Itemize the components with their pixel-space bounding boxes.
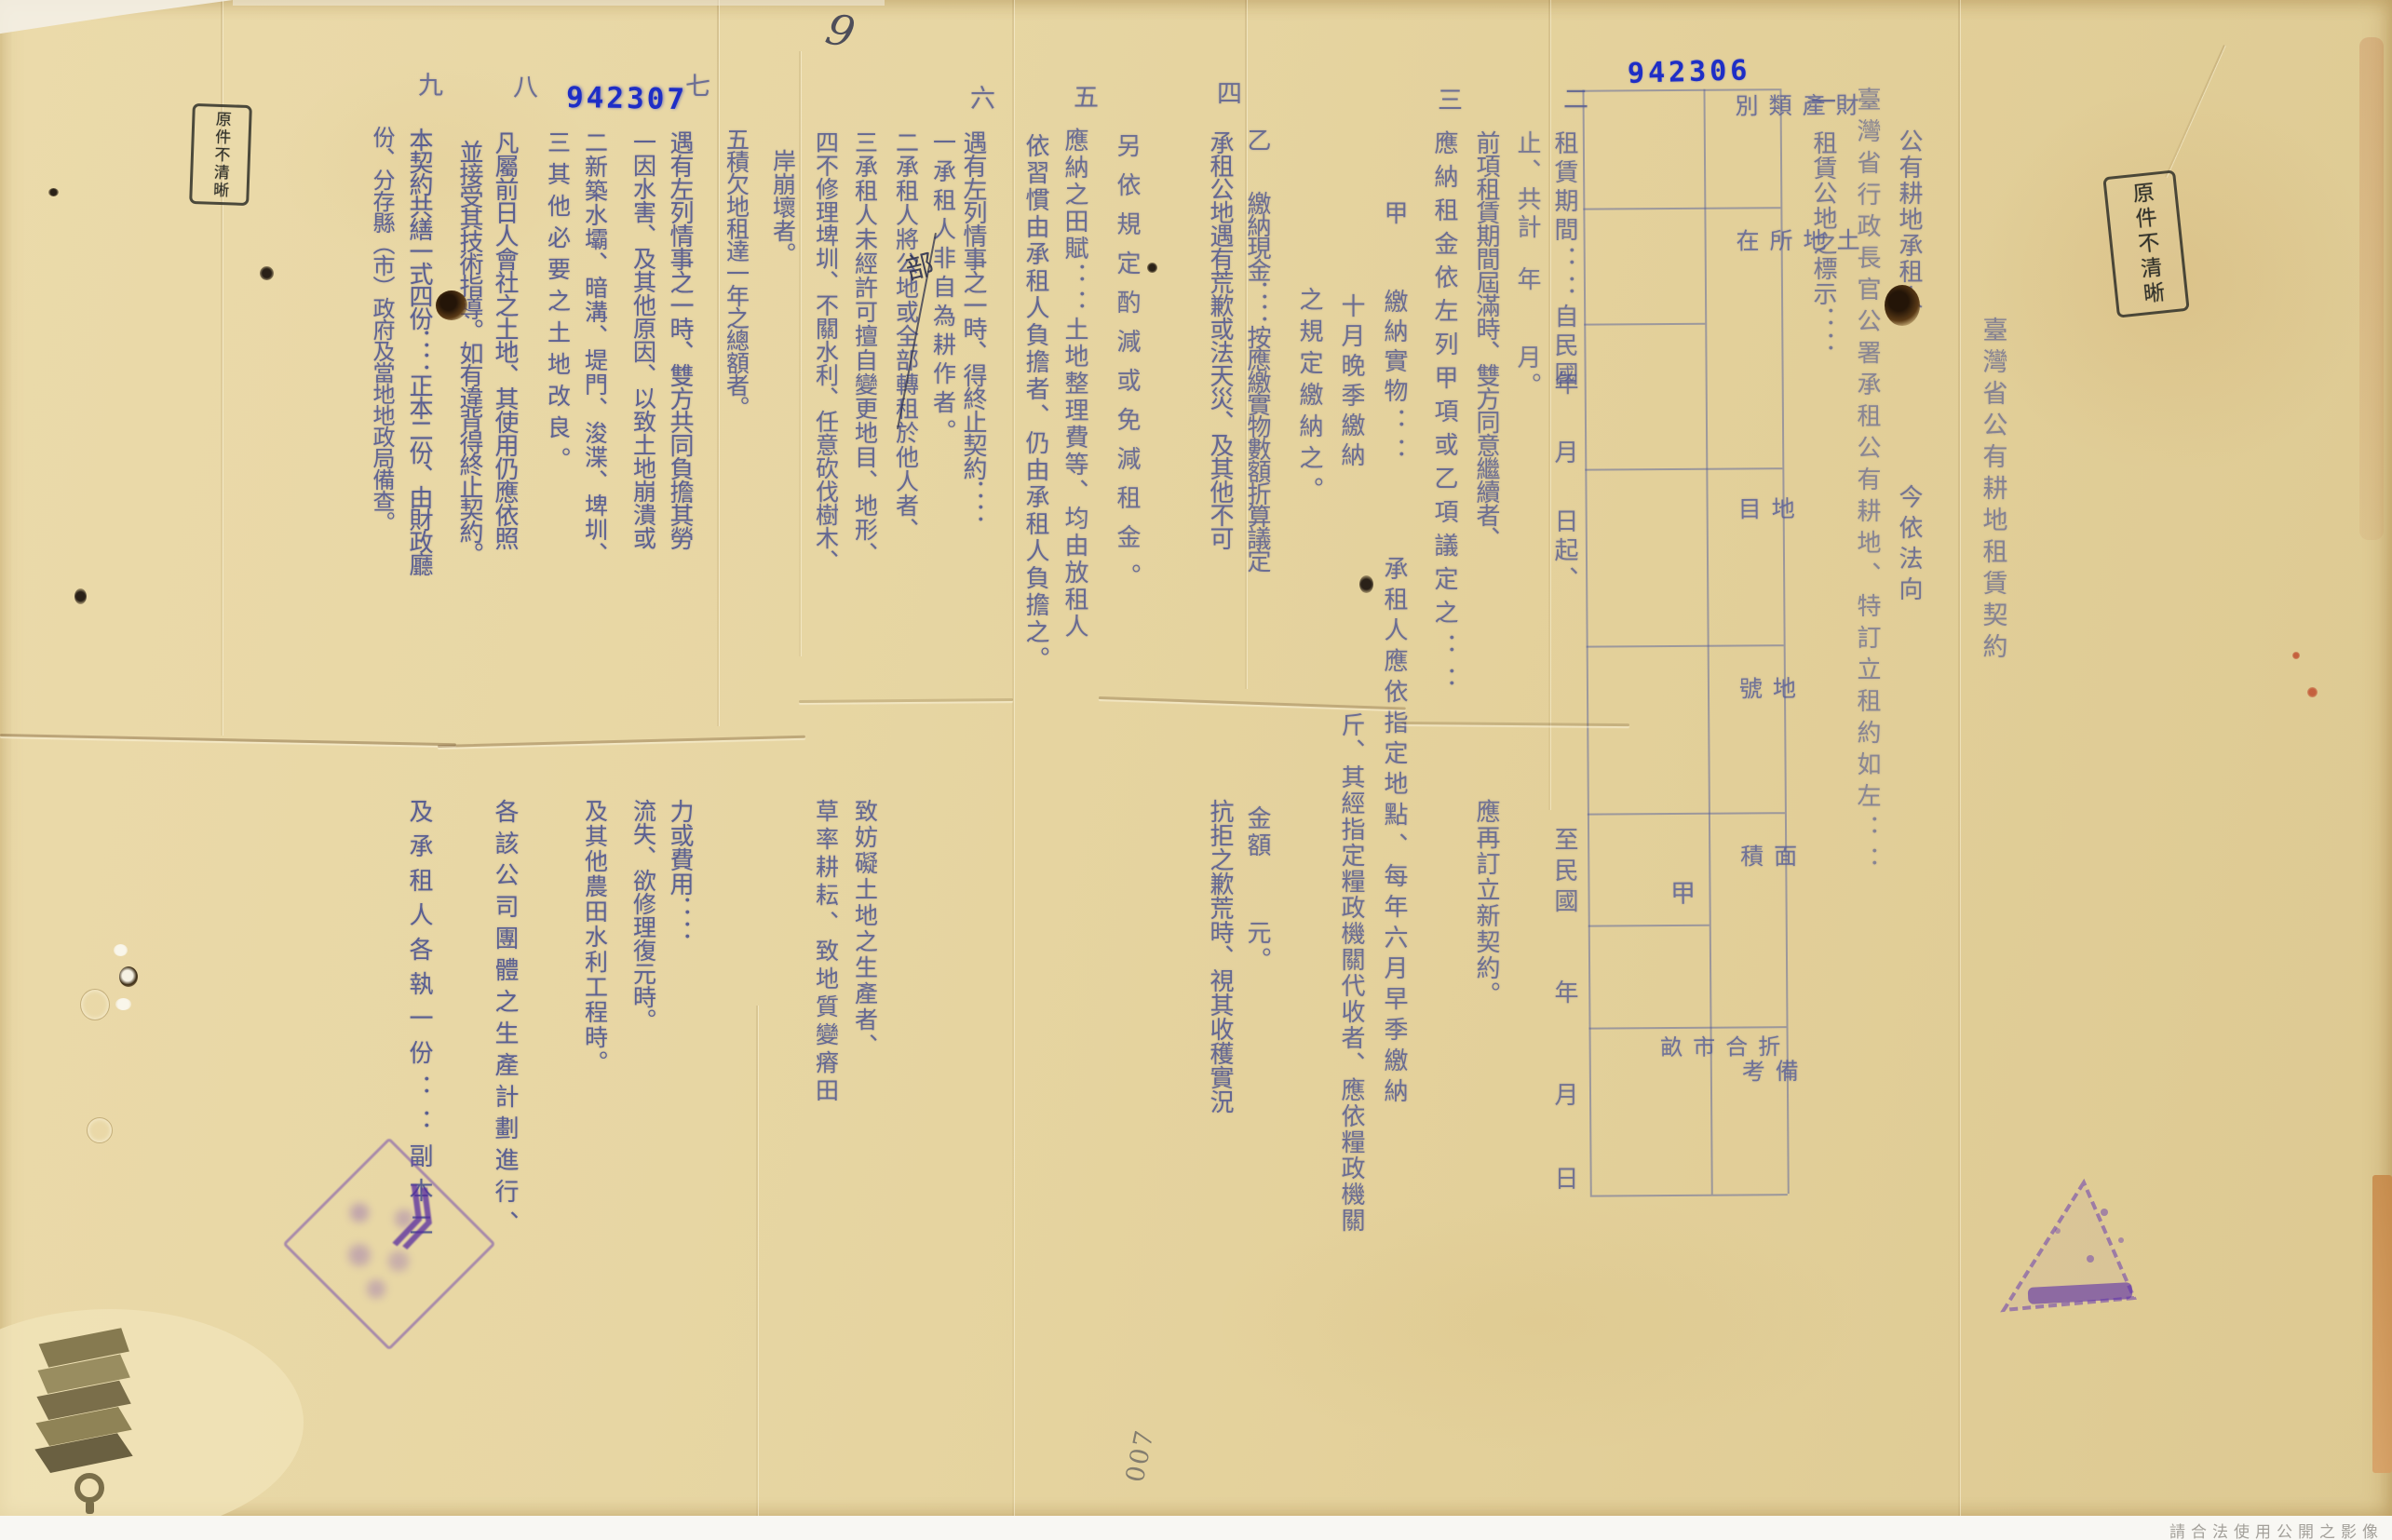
column-clause-6-item-4-tail-run0: 岸崩壞者。	[766, 149, 800, 265]
column-clause-4-col2-run0: 另依規定酌減或免減租金。	[1110, 133, 1144, 602]
column-clause-2-col1-run3: 日起、	[1547, 508, 1582, 595]
column-clause-5-col2-run0: 依習慣由承租人負擔者、仍由承租人負擔之。	[1019, 133, 1053, 673]
original-unclear-stamp-left: 原件不清晰	[189, 103, 252, 206]
column-clause-2-col1-run7: 日	[1547, 1166, 1582, 1195]
column-clause-6-item-4-run0: 四不修理埤圳、不關水利、任意砍伐樹木、	[809, 130, 843, 573]
column-clause-2-col1-run4: 至民國	[1547, 827, 1582, 919]
column-clause-9-col2-run0: 份、分存縣（市）政府及當地地政局備查。	[366, 126, 399, 533]
column-clause-9-col1-run0: 本契約共繕一式四份：：正本二份、由財政廳	[402, 128, 437, 574]
column-clause-2-col3-run0: 前項租賃期間屆滿時、雙方同意繼續者、	[1469, 130, 1504, 549]
column-clause-3-item-jia-col2-run0: 十月晚季繳納	[1334, 293, 1369, 472]
table-header-地目: 地目	[1731, 496, 1799, 593]
column-clause-2-col1-run6: 月	[1547, 1082, 1582, 1111]
column-clause-2-col2-run2: 月。	[1510, 344, 1545, 400]
clause-marker-九: 九	[410, 72, 446, 97]
column-clause-6-item-3-run1: 致妨礙土地之生產者、	[848, 799, 882, 1060]
clause-marker-六: 六	[962, 85, 998, 110]
column-clause-7-item-1-run1: 流失、欲修理復元時。	[627, 799, 660, 1032]
table-header-備考: 備考	[1735, 1059, 1803, 1139]
column-clause-7-text-run1: 力或費用：：	[663, 799, 697, 944]
column-clause-6-text-run0: 遇有左列情事之一時、得終止契約：：	[956, 130, 991, 526]
original-unclear-stamp-right: 原件不清晰	[2102, 169, 2189, 317]
column-clause-4-col1-run0: 承租公地遇有荒歉或法天災、及其他不可	[1203, 130, 1237, 549]
column-clause-7-item-2-run1: 及其他農田水利工程時。	[578, 799, 612, 1075]
column-clause-2-col3-run1: 應再訂立新契約。	[1469, 799, 1504, 1007]
column-clause-8-col1-run0: 凡屬前日人會社之土地、其使用仍應依照	[488, 130, 522, 549]
column-clause-7-text-run0: 遇有左列情事之一時、雙方共同負擔其勞	[663, 130, 697, 549]
column-clause-7-item-1-run0: 一因水害、及其他原因、以致土地崩潰或	[627, 130, 660, 549]
archive-number-942307: 942307	[566, 81, 688, 116]
column-clause-6-item-2-run0: 二承租人將公地或全部轉租於他人者、	[889, 130, 923, 542]
column-clause-8-col2-run0: 並接受其技術指導。如有違背得終止契約。	[453, 140, 487, 564]
usage-caption: 請合法使用公開之影像	[2169, 1519, 2384, 1540]
table-header-地號: 地號	[1732, 676, 1800, 758]
column-clause-6-item-1-run0: 一承租人非自為耕作者。	[926, 130, 960, 448]
column-clause-3-item-jia-col1-run2: 承租人應依指定地點、每年六月早季繳納	[1377, 556, 1412, 1109]
column-clause-3-item-yi-run3: 元。	[1240, 920, 1275, 974]
column-clause-3-item-jia-col3-run0: 之規定繳納之。	[1292, 287, 1327, 508]
column-clause-6-item-5-run0: 五積欠地租達一年之總額者。	[720, 128, 753, 418]
stamp-text: 原件不清晰	[2124, 180, 2169, 308]
stamp-text: 原件不清晰	[208, 110, 234, 199]
column-intro-line-1-run1: 今依法向	[1892, 484, 1926, 607]
column-clause-3-text-run0: 應納租金依左列甲項或乙項議定之：：	[1427, 130, 1462, 700]
scan-edge-top	[233, 0, 885, 6]
column-clause-7-item-2-run0: 二新築水壩、暗溝、堤門、浚渫、埤圳、	[578, 130, 612, 566]
column-intro-line-2-run0: 臺灣省行政長官公署承租公有耕地、特訂立租約如左：：	[1850, 87, 1885, 878]
column-clause-2-col2-run0: 止、共計	[1510, 130, 1545, 242]
table-header-財產類別: 財產類別	[1728, 92, 1862, 122]
column-clause-2-col2-run1: 年	[1510, 266, 1545, 294]
column-clause-3-item-jia-col1-run1: 繳納實物：：	[1377, 289, 1412, 467]
clause-marker-四: 四	[1209, 80, 1245, 105]
table-header-面積: 面積	[1734, 844, 1802, 971]
column-clause-3-item-yi-run2: 金額	[1240, 805, 1275, 859]
column-clause-3-item-yi-run1: 繳納現金：：按應繳實物數額折算議定	[1240, 191, 1275, 571]
column-clause-3-item-jia-col2-run1: 斤、其經指定糧政機關代收者、應依糧政機關	[1334, 712, 1369, 1234]
column-clause-8-col1-run1: 各該公司團體之生產計劃進行、	[488, 799, 522, 1242]
column-clause-7-item-3-run0: 三其他必要之土地改良。	[541, 130, 574, 479]
column-clause-6-item-3-run0: 三承租人未經許可擅自變更地目、地形、	[848, 130, 882, 566]
table-header-土地所在: 土地所在	[1729, 227, 1863, 293]
table-sublabel-折合市畝: 折合市畝	[1654, 1034, 1784, 1069]
column-clause-3-item-jia-col1-run0: 甲	[1377, 200, 1412, 230]
column-title-column-run0: 臺灣省公有耕地租賃契約	[1975, 317, 2011, 665]
column-clause-2-col1-run1: 年	[1547, 371, 1582, 399]
clause-marker-八: 八	[505, 74, 541, 99]
column-clause-9-col1-run1: 及承租人各執一份：：副本二	[402, 799, 437, 1247]
clause-marker-五: 五	[1065, 84, 1101, 109]
column-clause-2-col1-run5: 年	[1547, 979, 1582, 1008]
table-sublabel-甲: 甲	[1662, 880, 1698, 905]
archive-number-942306: 942306	[1628, 54, 1751, 89]
paper-sheet	[0, 0, 2392, 1518]
clause-marker-三: 三	[1429, 87, 1466, 112]
scan-margin-bottom: 請合法使用公開之影像	[0, 1516, 2392, 1540]
column-clause-2-col1-run2: 月	[1547, 439, 1582, 468]
column-clause-3-item-yi-run0: 乙	[1240, 128, 1275, 152]
column-intro-line-1-run0: 公有耕地承租人	[1892, 128, 1926, 311]
column-clause-5-col1-run0: 應納之田賦：：土地整理費等、均由放租人	[1058, 128, 1092, 641]
column-clause-4-col1-run1: 抗拒之歉荒時、視其收穫實況	[1203, 799, 1237, 1114]
column-clause-2-col1-run0: 租賃期間：：自民國	[1547, 130, 1582, 390]
scanned-document-page: 臺灣省公有耕地租賃契約公有耕地承租人今依法向臺灣省行政長官公署承租公有耕地、特訂…	[0, 0, 2392, 1540]
column-clause-6-item-4-run1: 草率耕耘、致地質變瘠田	[809, 799, 843, 1106]
